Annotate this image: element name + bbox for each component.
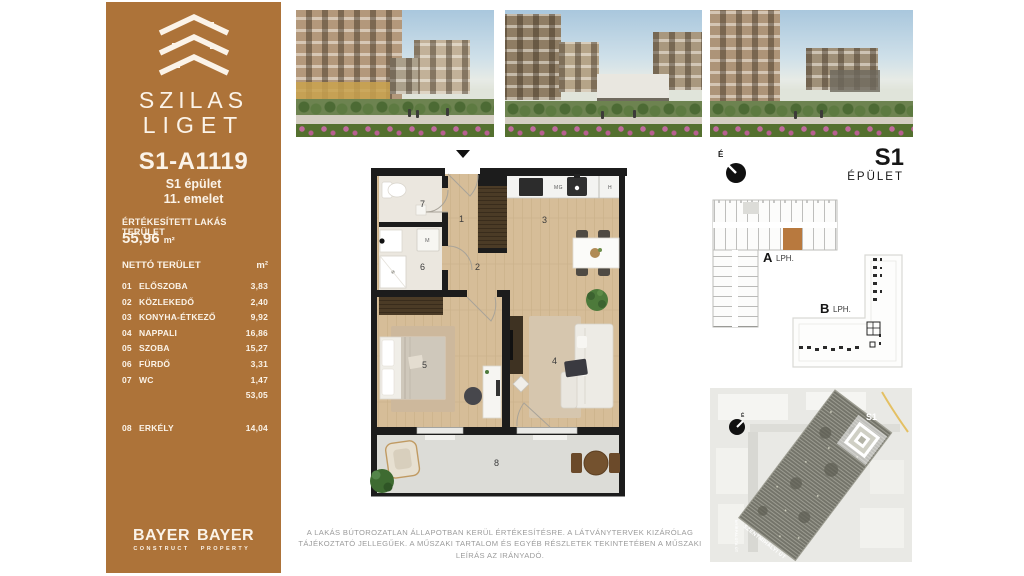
b-staircase-sub: LPH. <box>833 305 851 314</box>
table-row: 02KÖZLEKEDŐ2,40 <box>122 297 268 307</box>
net-area-header: NETTÓ TERÜLET m² <box>122 260 268 271</box>
room-label-6: 6 <box>420 262 425 272</box>
compass-letter: É <box>718 150 723 159</box>
unit-id: S1-A1119 <box>106 148 281 176</box>
table-row: 03KONYHA-ÉTKEZŐ9,92 <box>122 312 268 322</box>
person <box>794 111 797 119</box>
bedroom-wardrobe <box>379 297 443 315</box>
building-facade <box>505 14 561 100</box>
brochure-page: { "sidebar": { "accent_color": "#ad7339"… <box>0 0 1024 576</box>
flower-bed <box>710 124 913 137</box>
person <box>416 110 419 118</box>
balcony-row: 08ERKÉLY14,04 <box>122 423 268 433</box>
sold-area-unit: m² <box>164 235 175 245</box>
flower-bed <box>296 124 494 137</box>
person <box>633 110 636 118</box>
bayer-construct-logo: BAYER CONSTRUCT <box>133 528 190 552</box>
shower <box>380 256 406 288</box>
unit-location: S1 épület 11. emelet <box>106 177 281 207</box>
b-staircase-label: B <box>820 301 829 316</box>
pavilion <box>597 74 669 104</box>
sold-area-value: 55,96 m² <box>122 230 175 247</box>
table-row: 06FÜRDŐ3,31 <box>122 359 268 369</box>
map-building-tag: S1 <box>866 412 877 422</box>
building-facade <box>390 58 418 94</box>
building-header: S1 ÉPÜLET <box>818 146 904 183</box>
a-wing <box>713 200 837 327</box>
building-facade <box>414 40 470 94</box>
fridge-label: H <box>608 185 612 191</box>
cooktop <box>519 178 543 196</box>
disclaimer-text: A LAKÁS BÚTOROZATLAN ÁLLAPOTBAN KERÜL ÉR… <box>294 527 706 561</box>
room-label-2: 2 <box>475 262 480 272</box>
sold-area-number: 55,96 <box>122 230 160 247</box>
greenery <box>710 101 913 117</box>
bed <box>380 337 445 399</box>
balcony-plant <box>370 469 394 493</box>
pavilion <box>830 70 880 92</box>
room-label-7: 7 <box>420 199 425 209</box>
room-label-4: 4 <box>552 356 557 366</box>
apartment-floorplan: MG H <box>369 160 627 510</box>
table-row: 04NAPPALI16,86 <box>122 328 268 338</box>
brand-logo: SZILAS LIGET <box>106 12 281 137</box>
table-row: 01ELŐSZOBA3,83 <box>122 281 268 291</box>
table-row: 05SZOBA15,27 <box>122 343 268 353</box>
person <box>601 111 604 119</box>
person <box>408 109 411 117</box>
net-total-row: 53,05 <box>122 390 268 400</box>
washing-machine: M <box>417 229 439 251</box>
entrance-arrow-icon <box>456 150 470 158</box>
microwave-label: MG <box>554 185 563 191</box>
net-total-value: 53,05 <box>246 390 268 400</box>
building-label: ÉPÜLET <box>818 171 904 183</box>
room-label-1: 1 <box>459 214 464 224</box>
a-staircase-label: A <box>763 250 773 265</box>
washbasin <box>379 230 402 252</box>
logo-text-line2: LIGET <box>106 114 281 137</box>
street-label-2: NYÍRPALOTA ÚT <box>734 520 739 553</box>
unit-building: S1 épület <box>106 177 281 192</box>
site-map: S1 É SZENTMIHÁLYI ÚT NYÍRPALOTA ÚT <box>710 388 912 562</box>
monitor <box>496 380 500 396</box>
brand-logos: BAYER CONSTRUCT BAYER PROPERTY <box>106 528 281 552</box>
hall-wardrobe <box>478 186 507 248</box>
logo-text-line1: SZILAS <box>106 87 281 114</box>
person <box>446 108 449 116</box>
greenery <box>296 99 494 115</box>
render-photo-2 <box>505 10 702 137</box>
render-photo-3 <box>710 10 913 137</box>
compass-icon <box>722 159 752 189</box>
building-code: S1 <box>818 146 904 170</box>
building-facade <box>559 42 599 92</box>
a-staircase-sub: LPH. <box>776 254 794 263</box>
plant <box>586 289 608 311</box>
room-label-5: 5 <box>422 360 427 370</box>
table-row: 07WC1,47 <box>122 375 268 385</box>
svg-text:M: M <box>425 238 430 244</box>
roof-chevrons-icon <box>146 12 242 80</box>
kitchen-counter: MG H <box>507 174 619 198</box>
render-photo-1 <box>296 10 494 137</box>
unit-floor: 11. emelet <box>106 192 281 207</box>
room-table: 01ELŐSZOBA3,83 02KÖZLEKEDŐ2,40 03KONYHA-… <box>122 281 268 439</box>
room-label-3: 3 <box>542 215 547 225</box>
flower-bed <box>505 124 702 137</box>
compass-north: É <box>716 150 752 190</box>
floor-schematic: A LPH. B LPH. <box>703 196 915 372</box>
balcony-table-set <box>571 451 620 475</box>
tv <box>510 330 513 360</box>
sidebar: SZILAS LIGET S1-A1119 S1 épület 11. emel… <box>106 2 281 573</box>
toilet <box>382 182 406 198</box>
bayer-property-logo: BAYER PROPERTY <box>197 528 254 552</box>
room-label-8: 8 <box>494 458 499 468</box>
net-area-label: NETTÓ TERÜLET <box>122 260 201 271</box>
net-area-unit: m² <box>256 260 268 271</box>
building-facade <box>710 10 780 110</box>
person <box>820 110 823 118</box>
desk-chair <box>464 387 482 405</box>
highlighted-unit <box>783 228 802 250</box>
